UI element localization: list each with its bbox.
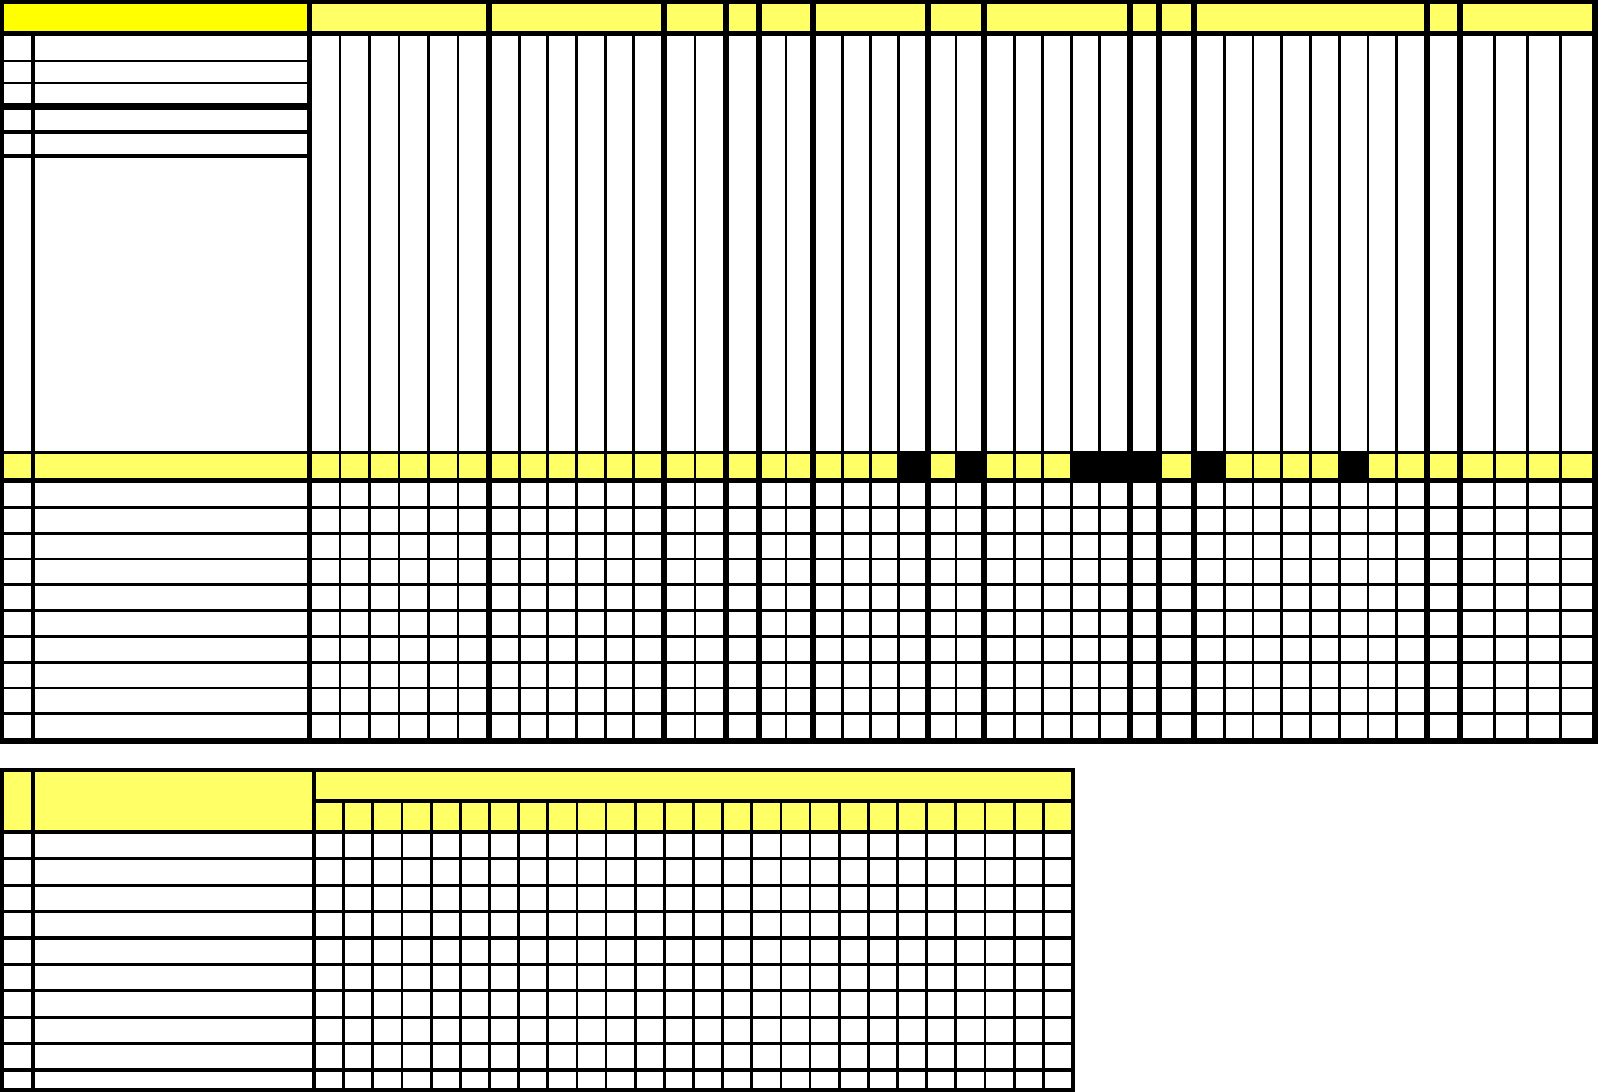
bottom-grid-cell[interactable]	[374, 1019, 400, 1042]
bottom-row-label-cell[interactable]	[35, 992, 312, 1015]
bottom-grid-cell[interactable]	[549, 1072, 575, 1088]
bottom-grid-cell[interactable]	[899, 992, 925, 1015]
bottom-grid-cell[interactable]	[1045, 1019, 1071, 1042]
bottom-grid-cell[interactable]	[1045, 834, 1071, 857]
bottom-grid-cell[interactable]	[695, 860, 721, 883]
bottom-grid-cell[interactable]	[666, 887, 692, 910]
bottom-grid-cell[interactable]	[870, 887, 896, 910]
bottom-grid-cell[interactable]	[433, 1072, 459, 1088]
bottom-grid-cell[interactable]	[957, 860, 983, 883]
bottom-subheader-cell[interactable]	[345, 803, 371, 830]
bottom-grid-cell[interactable]	[345, 992, 371, 1015]
bottom-grid-cell[interactable]	[1016, 913, 1042, 936]
bottom-grid-cell[interactable]	[316, 887, 342, 910]
bottom-grid-cell[interactable]	[753, 940, 779, 963]
bottom-grid-cell[interactable]	[957, 1019, 983, 1042]
bottom-grid-cell[interactable]	[957, 940, 983, 963]
bottom-grid-cell[interactable]	[462, 1072, 488, 1088]
bottom-grid-cell[interactable]	[957, 913, 983, 936]
bottom-grid-cell[interactable]	[1045, 1045, 1071, 1068]
bottom-grid-cell[interactable]	[607, 913, 633, 936]
bottom-grid-cell[interactable]	[403, 834, 429, 857]
bottom-grid-cell[interactable]	[1045, 966, 1071, 989]
bottom-grid-cell[interactable]	[928, 913, 954, 936]
bottom-grid-cell[interactable]	[753, 1072, 779, 1088]
bottom-grid-cell[interactable]	[753, 966, 779, 989]
bottom-grid-cell[interactable]	[607, 860, 633, 883]
bottom-grid-cell[interactable]	[870, 940, 896, 963]
bottom-grid-cell[interactable]	[433, 887, 459, 910]
bottom-grid-cell[interactable]	[607, 966, 633, 989]
bottom-grid-cell[interactable]	[374, 887, 400, 910]
bottom-grid-cell[interactable]	[724, 1045, 750, 1068]
bottom-grid-cell[interactable]	[695, 834, 721, 857]
bottom-grid-cell[interactable]	[637, 887, 663, 910]
bottom-grid-cell[interactable]	[1016, 887, 1042, 910]
bottom-grid-cell[interactable]	[637, 1072, 663, 1088]
bottom-grid-cell[interactable]	[345, 887, 371, 910]
bottom-row-label-cell[interactable]	[35, 1019, 312, 1042]
bottom-grid-cell[interactable]	[491, 1045, 517, 1068]
bottom-grid-cell[interactable]	[899, 887, 925, 910]
bottom-row-label-cell[interactable]	[35, 966, 312, 989]
bottom-row-label-cell[interactable]	[35, 887, 312, 910]
bottom-grid-cell[interactable]	[928, 887, 954, 910]
bottom-grid-cell[interactable]	[462, 834, 488, 857]
bottom-grid-cell[interactable]	[549, 992, 575, 1015]
bottom-grid-cell[interactable]	[374, 913, 400, 936]
bottom-grid-cell[interactable]	[462, 1019, 488, 1042]
bottom-subheader-cell[interactable]	[666, 803, 692, 830]
bottom-header-index-cell[interactable]	[4, 772, 31, 830]
bottom-grid-cell[interactable]	[724, 1072, 750, 1088]
bottom-grid-cell[interactable]	[403, 940, 429, 963]
bottom-grid-cell[interactable]	[870, 834, 896, 857]
bottom-grid-cell[interactable]	[928, 966, 954, 989]
bottom-grid-cell[interactable]	[782, 966, 808, 989]
bottom-grid-cell[interactable]	[491, 992, 517, 1015]
bottom-grid-cell[interactable]	[666, 1045, 692, 1068]
bottom-grid-cell[interactable]	[782, 913, 808, 936]
bottom-grid-cell[interactable]	[899, 834, 925, 857]
bottom-grid-cell[interactable]	[607, 1045, 633, 1068]
bottom-grid-cell[interactable]	[695, 913, 721, 936]
bottom-grid-cell[interactable]	[666, 992, 692, 1015]
bottom-grid-cell[interactable]	[811, 860, 837, 883]
bottom-grid-cell[interactable]	[899, 860, 925, 883]
bottom-row-index-cell[interactable]	[4, 940, 31, 963]
bottom-grid-cell[interactable]	[607, 887, 633, 910]
bottom-grid-cell[interactable]	[841, 1045, 867, 1068]
bottom-grid-cell[interactable]	[666, 966, 692, 989]
bottom-subheader-cell[interactable]	[1016, 803, 1042, 830]
bottom-grid-cell[interactable]	[811, 1019, 837, 1042]
bottom-grid-cell[interactable]	[637, 860, 663, 883]
bottom-subheader-cell[interactable]	[928, 803, 954, 830]
bottom-row-label-cell[interactable]	[35, 913, 312, 936]
bottom-grid-cell[interactable]	[345, 913, 371, 936]
bottom-grid-cell[interactable]	[520, 940, 546, 963]
bottom-grid-cell[interactable]	[1016, 834, 1042, 857]
bottom-grid-cell[interactable]	[986, 1019, 1012, 1042]
bottom-grid-cell[interactable]	[841, 1072, 867, 1088]
bottom-grid-cell[interactable]	[782, 834, 808, 857]
bottom-grid-cell[interactable]	[316, 1019, 342, 1042]
bottom-grid-cell[interactable]	[316, 1072, 342, 1088]
bottom-grid-cell[interactable]	[870, 992, 896, 1015]
bottom-grid-cell[interactable]	[491, 887, 517, 910]
bottom-grid-cell[interactable]	[637, 913, 663, 936]
bottom-grid-cell[interactable]	[841, 992, 867, 1015]
bottom-grid-cell[interactable]	[811, 1072, 837, 1088]
bottom-grid-cell[interactable]	[753, 1045, 779, 1068]
bottom-grid-cell[interactable]	[928, 940, 954, 963]
bottom-grid-cell[interactable]	[433, 834, 459, 857]
bottom-subheader-cell[interactable]	[899, 803, 925, 830]
bottom-grid-cell[interactable]	[899, 913, 925, 936]
bottom-grid-cell[interactable]	[345, 940, 371, 963]
bottom-grid-cell[interactable]	[491, 860, 517, 883]
bottom-grid-cell[interactable]	[433, 860, 459, 883]
bottom-grid-cell[interactable]	[462, 860, 488, 883]
bottom-grid-cell[interactable]	[549, 940, 575, 963]
bottom-grid-cell[interactable]	[345, 966, 371, 989]
bottom-grid-cell[interactable]	[316, 860, 342, 883]
bottom-grid-cell[interactable]	[316, 966, 342, 989]
bottom-grid-cell[interactable]	[724, 834, 750, 857]
bottom-grid-cell[interactable]	[316, 992, 342, 1015]
bottom-grid-cell[interactable]	[782, 1072, 808, 1088]
bottom-subheader-cell[interactable]	[695, 803, 721, 830]
bottom-row-index-cell[interactable]	[4, 1045, 31, 1068]
bottom-grid-cell[interactable]	[841, 887, 867, 910]
bottom-grid-cell[interactable]	[782, 860, 808, 883]
bottom-grid-cell[interactable]	[316, 913, 342, 936]
bottom-grid-cell[interactable]	[986, 860, 1012, 883]
bottom-grid-cell[interactable]	[782, 992, 808, 1015]
bottom-grid-cell[interactable]	[899, 1019, 925, 1042]
bottom-grid-cell[interactable]	[549, 966, 575, 989]
bottom-grid-cell[interactable]	[607, 940, 633, 963]
bottom-grid-cell[interactable]	[841, 940, 867, 963]
bottom-row-index-cell[interactable]	[4, 860, 31, 883]
bottom-grid-cell[interactable]	[753, 834, 779, 857]
bottom-grid-cell[interactable]	[578, 940, 604, 963]
bottom-grid-cell[interactable]	[986, 1045, 1012, 1068]
bottom-grid-cell[interactable]	[724, 940, 750, 963]
bottom-grid-cell[interactable]	[374, 940, 400, 963]
bottom-grid-cell[interactable]	[520, 913, 546, 936]
bottom-grid-cell[interactable]	[695, 1045, 721, 1068]
bottom-row-label-cell[interactable]	[35, 1072, 312, 1088]
bottom-grid-cell[interactable]	[578, 992, 604, 1015]
bottom-grid-cell[interactable]	[1016, 1072, 1042, 1088]
bottom-grid-cell[interactable]	[841, 834, 867, 857]
bottom-grid-cell[interactable]	[928, 1045, 954, 1068]
bottom-grid-cell[interactable]	[433, 1045, 459, 1068]
bottom-grid-cell[interactable]	[578, 834, 604, 857]
bottom-grid-cell[interactable]	[637, 1045, 663, 1068]
bottom-grid-cell[interactable]	[986, 992, 1012, 1015]
bottom-grid-cell[interactable]	[724, 913, 750, 936]
bottom-grid-cell[interactable]	[957, 834, 983, 857]
bottom-grid-cell[interactable]	[841, 913, 867, 936]
bottom-grid-cell[interactable]	[433, 940, 459, 963]
bottom-grid-cell[interactable]	[374, 966, 400, 989]
bottom-grid-cell[interactable]	[433, 913, 459, 936]
bottom-grid-cell[interactable]	[753, 1019, 779, 1042]
bottom-grid-cell[interactable]	[433, 966, 459, 989]
bottom-grid-cell[interactable]	[345, 834, 371, 857]
bottom-grid-cell[interactable]	[1045, 887, 1071, 910]
bottom-grid-cell[interactable]	[1016, 992, 1042, 1015]
bottom-grid-cell[interactable]	[607, 834, 633, 857]
bottom-subheader-cell[interactable]	[578, 803, 604, 830]
bottom-subheader-cell[interactable]	[491, 803, 517, 830]
bottom-grid-cell[interactable]	[724, 1019, 750, 1042]
bottom-grid-cell[interactable]	[491, 913, 517, 936]
bottom-subheader-cell[interactable]	[811, 803, 837, 830]
bottom-grid-cell[interactable]	[403, 1019, 429, 1042]
bottom-grid-cell[interactable]	[1016, 940, 1042, 963]
bottom-grid-cell[interactable]	[520, 834, 546, 857]
bottom-grid-cell[interactable]	[695, 966, 721, 989]
bottom-subheader-cell[interactable]	[841, 803, 867, 830]
bottom-grid-cell[interactable]	[695, 1019, 721, 1042]
bottom-subheader-cell[interactable]	[374, 803, 400, 830]
bottom-grid-cell[interactable]	[666, 940, 692, 963]
bottom-grid-cell[interactable]	[1016, 860, 1042, 883]
bottom-grid-cell[interactable]	[520, 887, 546, 910]
bottom-grid-cell[interactable]	[899, 1045, 925, 1068]
bottom-grid-cell[interactable]	[870, 860, 896, 883]
bottom-grid-cell[interactable]	[462, 940, 488, 963]
bottom-grid-cell[interactable]	[1016, 1019, 1042, 1042]
bottom-grid-cell[interactable]	[549, 860, 575, 883]
bottom-subheader-cell[interactable]	[870, 803, 896, 830]
bottom-grid-cell[interactable]	[637, 966, 663, 989]
bottom-grid-cell[interactable]	[345, 1019, 371, 1042]
bottom-row-index-cell[interactable]	[4, 992, 31, 1015]
bottom-grid-cell[interactable]	[870, 1019, 896, 1042]
bottom-grid-cell[interactable]	[578, 887, 604, 910]
bottom-grid-cell[interactable]	[637, 834, 663, 857]
bottom-grid-cell[interactable]	[957, 1072, 983, 1088]
bottom-subheader-cell[interactable]	[637, 803, 663, 830]
bottom-grid-cell[interactable]	[520, 1019, 546, 1042]
bottom-grid-cell[interactable]	[1016, 1045, 1042, 1068]
bottom-grid-cell[interactable]	[462, 887, 488, 910]
bottom-grid-cell[interactable]	[549, 1045, 575, 1068]
bottom-row-label-cell[interactable]	[35, 1045, 312, 1068]
bottom-grid-cell[interactable]	[433, 1019, 459, 1042]
bottom-grid-cell[interactable]	[374, 992, 400, 1015]
bottom-grid-cell[interactable]	[724, 966, 750, 989]
bottom-subheader-cell[interactable]	[316, 803, 342, 830]
bottom-grid-cell[interactable]	[491, 966, 517, 989]
bottom-grid-cell[interactable]	[374, 860, 400, 883]
bottom-grid-cell[interactable]	[695, 940, 721, 963]
bottom-grid-cell[interactable]	[986, 834, 1012, 857]
bottom-grid-cell[interactable]	[491, 1019, 517, 1042]
bottom-grid-cell[interactable]	[986, 966, 1012, 989]
bottom-grid-cell[interactable]	[870, 966, 896, 989]
bottom-grid-cell[interactable]	[520, 1045, 546, 1068]
bottom-row-index-cell[interactable]	[4, 913, 31, 936]
bottom-grid-cell[interactable]	[607, 1019, 633, 1042]
bottom-grid-cell[interactable]	[753, 992, 779, 1015]
bottom-grid-cell[interactable]	[666, 913, 692, 936]
bottom-grid-cell[interactable]	[607, 992, 633, 1015]
bottom-grid-cell[interactable]	[316, 940, 342, 963]
bottom-grid-cell[interactable]	[462, 913, 488, 936]
bottom-grid-cell[interactable]	[928, 992, 954, 1015]
bottom-subheader-cell[interactable]	[549, 803, 575, 830]
bottom-grid-cell[interactable]	[957, 966, 983, 989]
bottom-subheader-cell[interactable]	[403, 803, 429, 830]
bottom-grid-cell[interactable]	[637, 940, 663, 963]
bottom-grid-cell[interactable]	[403, 1045, 429, 1068]
bottom-grid-cell[interactable]	[345, 1072, 371, 1088]
bottom-grid-cell[interactable]	[1045, 913, 1071, 936]
bottom-grid-cell[interactable]	[811, 1045, 837, 1068]
bottom-grid-cell[interactable]	[841, 1019, 867, 1042]
bottom-grid-cell[interactable]	[928, 860, 954, 883]
bottom-grid-cell[interactable]	[607, 1072, 633, 1088]
bottom-grid-cell[interactable]	[724, 887, 750, 910]
bottom-grid-cell[interactable]	[374, 834, 400, 857]
bottom-grid-cell[interactable]	[578, 860, 604, 883]
bottom-grid-cell[interactable]	[724, 992, 750, 1015]
bottom-row-label-cell[interactable]	[35, 834, 312, 857]
bottom-grid-cell[interactable]	[666, 834, 692, 857]
bottom-grid-cell[interactable]	[841, 966, 867, 989]
bottom-subheader-cell[interactable]	[782, 803, 808, 830]
bottom-grid-cell[interactable]	[841, 860, 867, 883]
bottom-grid-cell[interactable]	[403, 1072, 429, 1088]
bottom-grid-cell[interactable]	[811, 940, 837, 963]
bottom-row-index-cell[interactable]	[4, 966, 31, 989]
bottom-grid-cell[interactable]	[811, 887, 837, 910]
bottom-grid-cell[interactable]	[782, 940, 808, 963]
bottom-grid-cell[interactable]	[520, 860, 546, 883]
bottom-subheader-cell[interactable]	[1045, 803, 1071, 830]
bottom-grid-cell[interactable]	[957, 992, 983, 1015]
bottom-grid-cell[interactable]	[870, 1045, 896, 1068]
bottom-grid-cell[interactable]	[811, 913, 837, 936]
bottom-grid-cell[interactable]	[520, 1072, 546, 1088]
bottom-subheader-cell[interactable]	[724, 803, 750, 830]
bottom-grid-cell[interactable]	[899, 940, 925, 963]
bottom-grid-cell[interactable]	[316, 1045, 342, 1068]
bottom-subheader-cell[interactable]	[520, 803, 546, 830]
bottom-grid-cell[interactable]	[899, 966, 925, 989]
bottom-grid-cell[interactable]	[403, 913, 429, 936]
bottom-grid-cell[interactable]	[1045, 860, 1071, 883]
bottom-grid-cell[interactable]	[316, 834, 342, 857]
bottom-grid-cell[interactable]	[403, 860, 429, 883]
bottom-grid-cell[interactable]	[753, 860, 779, 883]
bottom-subheader-cell[interactable]	[753, 803, 779, 830]
bottom-grid-cell[interactable]	[928, 1072, 954, 1088]
bottom-subheader-cell[interactable]	[433, 803, 459, 830]
bottom-row-label-cell[interactable]	[35, 860, 312, 883]
bottom-subheader-cell[interactable]	[462, 803, 488, 830]
bottom-grid-cell[interactable]	[403, 887, 429, 910]
bottom-grid-cell[interactable]	[403, 966, 429, 989]
bottom-grid-cell[interactable]	[753, 913, 779, 936]
bottom-grid-cell[interactable]	[403, 992, 429, 1015]
bottom-grid-cell[interactable]	[549, 887, 575, 910]
bottom-grid-cell[interactable]	[811, 966, 837, 989]
bottom-grid-cell[interactable]	[811, 992, 837, 1015]
bottom-grid-cell[interactable]	[1045, 1072, 1071, 1088]
bottom-grid-cell[interactable]	[899, 1072, 925, 1088]
bottom-grid-cell[interactable]	[462, 966, 488, 989]
bottom-grid-cell[interactable]	[666, 1072, 692, 1088]
bottom-grid-cell[interactable]	[491, 834, 517, 857]
bottom-grid-cell[interactable]	[345, 860, 371, 883]
bottom-header-label-cell[interactable]	[35, 772, 312, 830]
bottom-grid-cell[interactable]	[811, 834, 837, 857]
bottom-grid-cell[interactable]	[782, 1019, 808, 1042]
bottom-grid-cell[interactable]	[462, 992, 488, 1015]
bottom-grid-cell[interactable]	[345, 1045, 371, 1068]
bottom-grid-cell[interactable]	[578, 913, 604, 936]
bottom-grid-cell[interactable]	[578, 1019, 604, 1042]
bottom-grid-cell[interactable]	[724, 860, 750, 883]
bottom-grid-cell[interactable]	[637, 1019, 663, 1042]
bottom-grid-cell[interactable]	[374, 1045, 400, 1068]
bottom-grid-cell[interactable]	[695, 992, 721, 1015]
bottom-grid-cell[interactable]	[986, 913, 1012, 936]
bottom-grid-cell[interactable]	[986, 940, 1012, 963]
bottom-grid-cell[interactable]	[957, 1045, 983, 1068]
bottom-grid-cell[interactable]	[578, 1045, 604, 1068]
bottom-grid-cell[interactable]	[1045, 992, 1071, 1015]
bottom-row-index-cell[interactable]	[4, 834, 31, 857]
bottom-grid-cell[interactable]	[462, 1045, 488, 1068]
bottom-grid-cell[interactable]	[491, 1072, 517, 1088]
bottom-grid-cell[interactable]	[1045, 940, 1071, 963]
bottom-grid-cell[interactable]	[549, 1019, 575, 1042]
bottom-grid-cell[interactable]	[695, 887, 721, 910]
bottom-subheader-cell[interactable]	[607, 803, 633, 830]
bottom-row-index-cell[interactable]	[4, 1072, 31, 1088]
bottom-grid-cell[interactable]	[578, 1072, 604, 1088]
bottom-grid-cell[interactable]	[957, 887, 983, 910]
bottom-grid-cell[interactable]	[520, 966, 546, 989]
bottom-grid-cell[interactable]	[870, 1072, 896, 1088]
bottom-grid-cell[interactable]	[637, 992, 663, 1015]
bottom-grid-cell[interactable]	[374, 1072, 400, 1088]
bottom-grid-cell[interactable]	[986, 887, 1012, 910]
bottom-subheader-cell[interactable]	[986, 803, 1012, 830]
bottom-grid-cell[interactable]	[549, 834, 575, 857]
bottom-grid-cell[interactable]	[491, 940, 517, 963]
bottom-grid-cell[interactable]	[870, 913, 896, 936]
bottom-grid-cell[interactable]	[753, 887, 779, 910]
bottom-row-label-cell[interactable]	[35, 940, 312, 963]
bottom-grid-cell[interactable]	[695, 1072, 721, 1088]
bottom-row-index-cell[interactable]	[4, 887, 31, 910]
bottom-grid-cell[interactable]	[666, 860, 692, 883]
bottom-grid-cell[interactable]	[578, 966, 604, 989]
bottom-subheader-cell[interactable]	[957, 803, 983, 830]
bottom-grid-cell[interactable]	[782, 887, 808, 910]
bottom-grid-cell[interactable]	[928, 1019, 954, 1042]
bottom-row-index-cell[interactable]	[4, 1019, 31, 1042]
